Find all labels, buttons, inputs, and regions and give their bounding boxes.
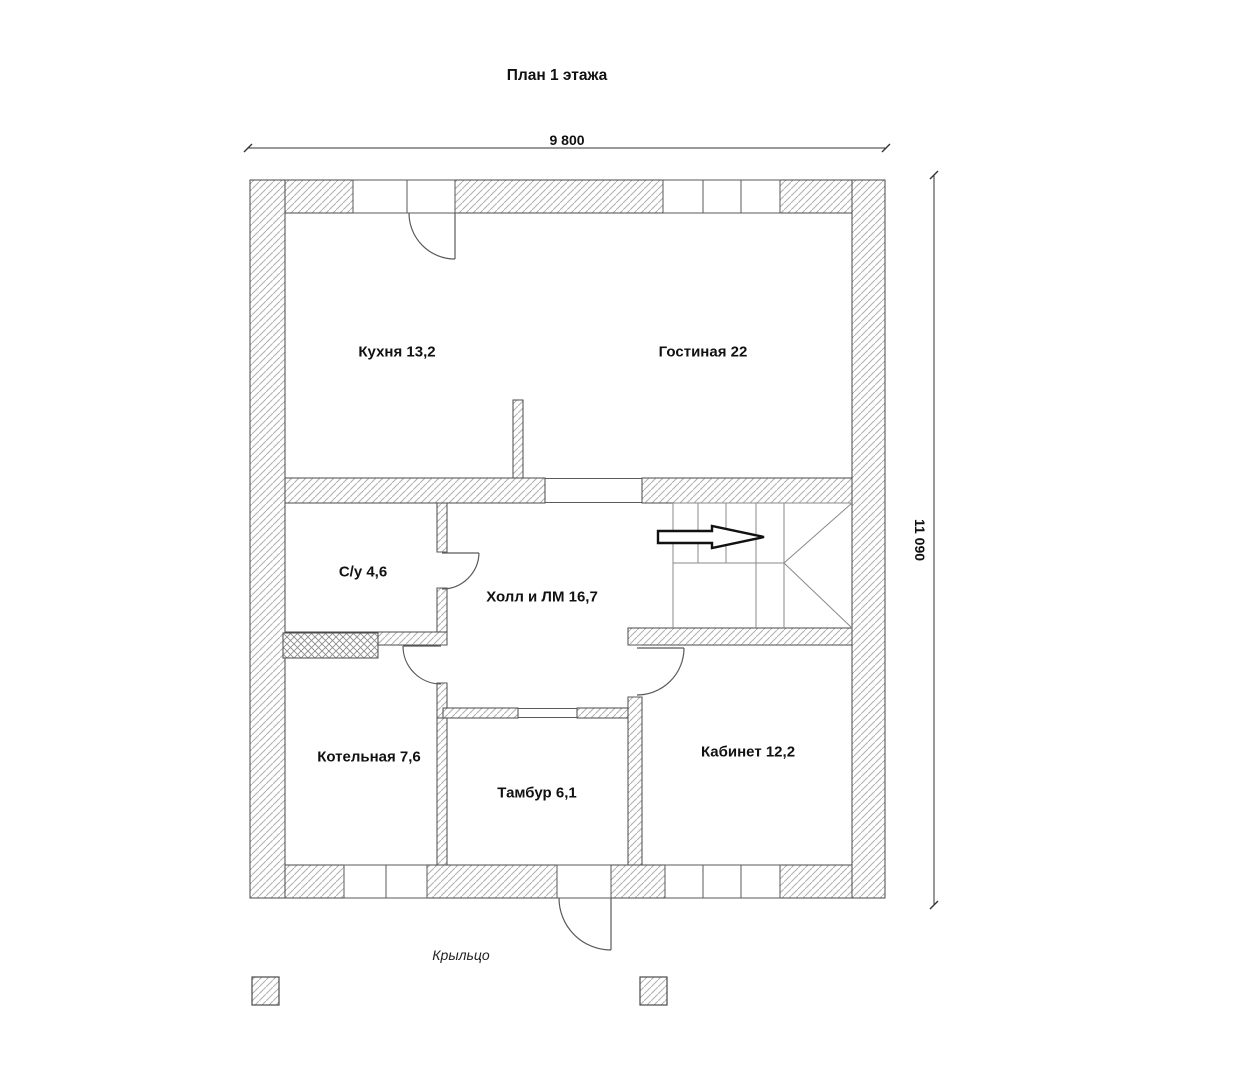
room-label-hall: Холл и ЛМ 16,7 [486, 589, 598, 606]
wall-bathroom-right-lower [437, 588, 447, 632]
porch-pillar-right [640, 977, 667, 1005]
door-office [637, 648, 684, 695]
wall-hall-bottom-left [443, 708, 518, 718]
wall-top [250, 180, 885, 213]
wall-mid-right [642, 478, 852, 503]
porch-pillars [252, 977, 667, 1005]
room-label-office: Кабинет 12,2 [701, 744, 795, 761]
wall-left [250, 180, 285, 898]
wall-mid-left [285, 478, 545, 503]
room-label-bathroom: С/у 4,6 [339, 564, 387, 581]
wall-stairs-bottom [628, 628, 852, 645]
stairs-direction-arrow [658, 526, 764, 548]
entrance-opening [557, 865, 611, 898]
wall-hall-bottom-right [577, 708, 630, 718]
room-label-vestibule: Тамбур 6,1 [497, 785, 576, 802]
porch-label: Крыльцо [432, 947, 489, 963]
window-kitchen-top [353, 180, 455, 213]
room-label-boiler: Котельная 7,6 [317, 749, 421, 766]
wall-kitchen-divider [513, 400, 523, 478]
room-label-kitchen: Кухня 13,2 [358, 344, 435, 361]
wall-vestibule-left [437, 718, 447, 865]
door-boiler [403, 646, 441, 684]
vent-shaft [283, 633, 378, 658]
page-title: План 1 этажа [507, 67, 608, 85]
floor-plan-page: План 1 этажа 9 800 11 090 Кухня 13,2 Гос… [0, 0, 1248, 1080]
wall-right [852, 180, 885, 898]
door-kitchen [409, 213, 455, 259]
wall-bathroom-right-upper [437, 503, 447, 552]
wall-office-left [628, 697, 642, 865]
staircase [673, 503, 852, 628]
dimension-lines [244, 144, 938, 909]
floor-plan-drawing [0, 0, 1248, 1080]
door-bathroom [442, 553, 479, 589]
dimension-right-value: 11 090 [912, 519, 928, 561]
door-entrance [559, 898, 611, 950]
window-living-top [663, 180, 780, 213]
dimension-top-value: 9 800 [549, 132, 584, 148]
window-office-bottom [665, 865, 780, 898]
porch-pillar-left [252, 977, 279, 1005]
room-label-living: Гостиная 22 [659, 344, 748, 361]
